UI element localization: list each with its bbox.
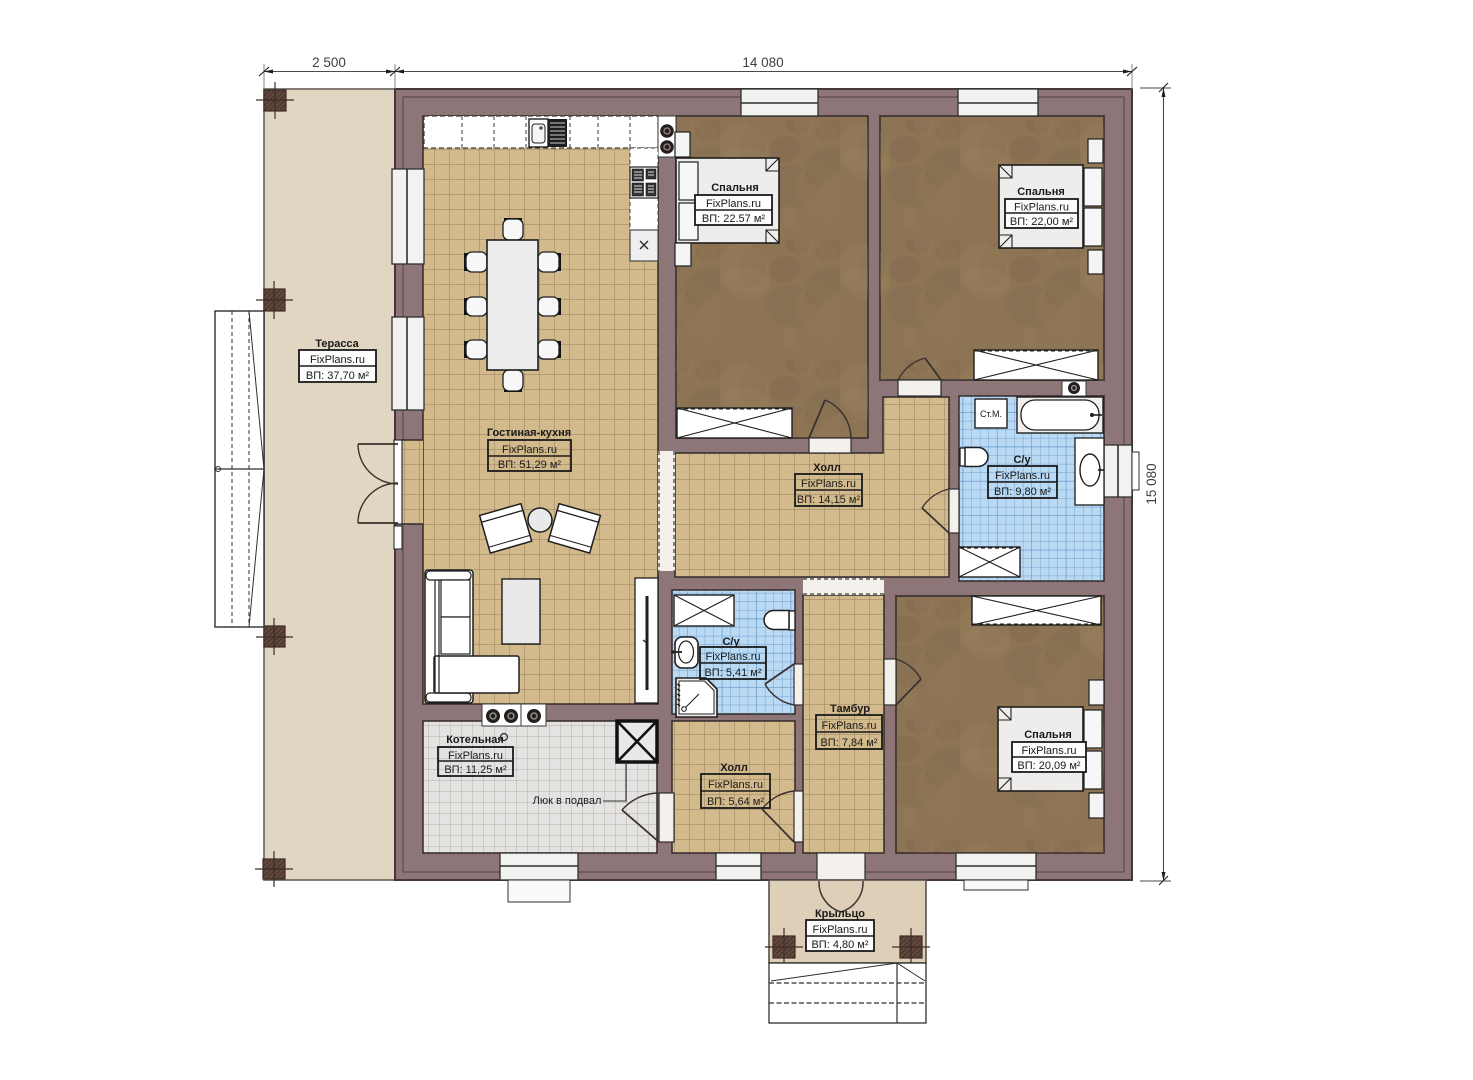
svg-text:Холл: Холл	[813, 462, 841, 474]
svg-text:Терасса: Терасса	[315, 338, 359, 350]
svg-text:FixPlans.ru: FixPlans.ru	[708, 779, 763, 791]
svg-text:ВП: 20,09 м²: ВП: 20,09 м²	[1017, 760, 1081, 772]
svg-text:ВП: 7,84 м²: ВП: 7,84 м²	[820, 737, 877, 749]
svg-text:Спальня: Спальня	[1024, 729, 1072, 741]
svg-text:FixPlans.ru: FixPlans.ru	[706, 198, 761, 210]
svg-text:Крыльцо: Крыльцо	[815, 908, 865, 920]
svg-text:ВП: 37,70 м²: ВП: 37,70 м²	[306, 370, 370, 382]
svg-text:ВП: 22,00 м²: ВП: 22,00 м²	[1010, 216, 1074, 228]
svg-text:14 080: 14 080	[742, 55, 783, 70]
svg-text:FixPlans.ru: FixPlans.ru	[995, 470, 1050, 482]
svg-text:Спальня: Спальня	[711, 182, 759, 194]
svg-text:Холл: Холл	[720, 762, 748, 774]
svg-text:Ст.М.: Ст.М.	[980, 409, 1002, 419]
svg-text:ВП: 14,15 м²: ВП: 14,15 м²	[797, 494, 861, 506]
svg-text:15 080: 15 080	[1144, 463, 1159, 504]
svg-text:ВП: 22.57 м²: ВП: 22.57 м²	[702, 213, 766, 225]
svg-text:Котельная: Котельная	[446, 734, 504, 746]
svg-text:ВП: 5,64 м²: ВП: 5,64 м²	[707, 796, 764, 808]
svg-text:FixPlans.ru: FixPlans.ru	[1014, 202, 1069, 214]
svg-text:FixPlans.ru: FixPlans.ru	[705, 651, 760, 663]
svg-text:FixPlans.ru: FixPlans.ru	[821, 720, 876, 732]
svg-text:FixPlans.ru: FixPlans.ru	[801, 478, 856, 490]
svg-text:Спальня: Спальня	[1017, 186, 1065, 198]
svg-text:ВП: 5,41 м²: ВП: 5,41 м²	[704, 667, 761, 679]
svg-text:FixPlans.ru: FixPlans.ru	[1021, 745, 1076, 757]
svg-text:FixPlans.ru: FixPlans.ru	[310, 354, 365, 366]
svg-text:Тамбур: Тамбур	[830, 703, 870, 715]
svg-text:FixPlans.ru: FixPlans.ru	[502, 444, 557, 456]
svg-text:ВП: 4,80 м²: ВП: 4,80 м²	[811, 939, 868, 951]
svg-text:ВП: 51,29 м²: ВП: 51,29 м²	[498, 459, 562, 471]
svg-text:ВП: 9,80 м²: ВП: 9,80 м²	[994, 486, 1051, 498]
svg-text:ВП: 11,25 м²: ВП: 11,25 м²	[444, 764, 507, 776]
svg-text:Люк в подвал: Люк в подвал	[533, 795, 602, 807]
svg-text:2 500: 2 500	[312, 55, 346, 70]
svg-text:С/у: С/у	[1013, 454, 1031, 466]
svg-text:FixPlans.ru: FixPlans.ru	[812, 924, 867, 936]
svg-text:Гостиная-кухня: Гостиная-кухня	[487, 427, 571, 439]
svg-text:FixPlans.ru: FixPlans.ru	[448, 750, 503, 762]
